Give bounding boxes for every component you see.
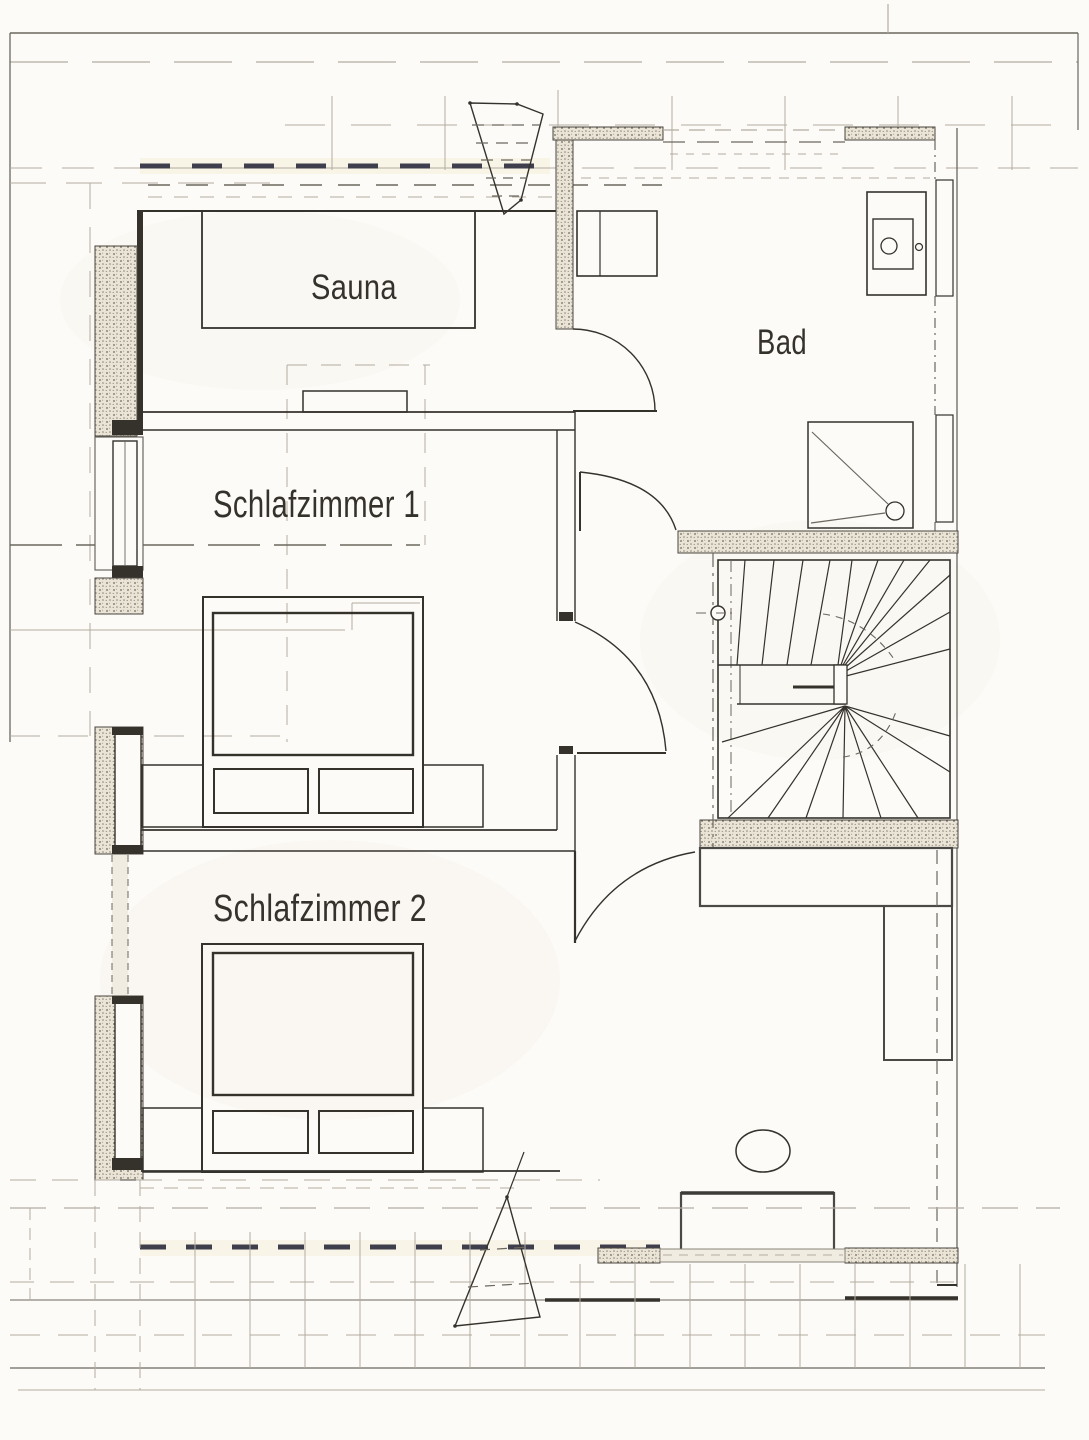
sauna-bench [303, 391, 407, 412]
wardrobe [700, 848, 952, 1060]
room-label-sauna: Sauna [311, 268, 397, 307]
floor-plan-drawing: Sauna [0, 0, 1089, 1440]
chair [736, 1130, 790, 1172]
exterior-wall [95, 246, 137, 436]
schlafzimmer-1: Schlafzimmer 1 [137, 412, 575, 851]
dormer-bottom [453, 1152, 540, 1328]
pillow [214, 769, 308, 813]
room-label-bad: Bad [757, 323, 807, 362]
nightstand [143, 1108, 202, 1172]
mattress [213, 613, 413, 755]
stair-top-wall [678, 531, 958, 553]
nightstand [423, 1108, 483, 1172]
window [115, 1002, 141, 1162]
washing-machine [577, 211, 657, 276]
shower [808, 422, 913, 528]
roof-slope-lines-bottom [10, 1180, 1060, 1390]
study-area [681, 848, 957, 1285]
window [936, 180, 953, 296]
shower-drain [886, 502, 904, 520]
door-hall-to-study [575, 852, 695, 941]
interior-wall [137, 211, 143, 435]
chimney-top [468, 101, 543, 214]
desk [681, 1193, 834, 1252]
pillow [319, 769, 413, 813]
room-label-schlafzimmer-1: Schlafzimmer 1 [213, 484, 420, 526]
floor-plan-page: Sauna [0, 0, 1089, 1440]
door-sauna-to-bad [573, 329, 657, 411]
washbasin [867, 192, 926, 295]
window [936, 415, 953, 522]
nightstand [423, 765, 483, 827]
left-exterior-wall [95, 420, 143, 1180]
window-frame [95, 437, 143, 570]
window [115, 733, 141, 847]
room-label-schlafzimmer-2: Schlafzimmer 2 [213, 888, 427, 930]
door-hall-to-bad [580, 472, 676, 531]
nightstand [142, 765, 203, 827]
stair-bottom-wall [700, 820, 958, 848]
double-bed-1 [142, 597, 483, 827]
sauna-bad-wall [556, 140, 573, 329]
